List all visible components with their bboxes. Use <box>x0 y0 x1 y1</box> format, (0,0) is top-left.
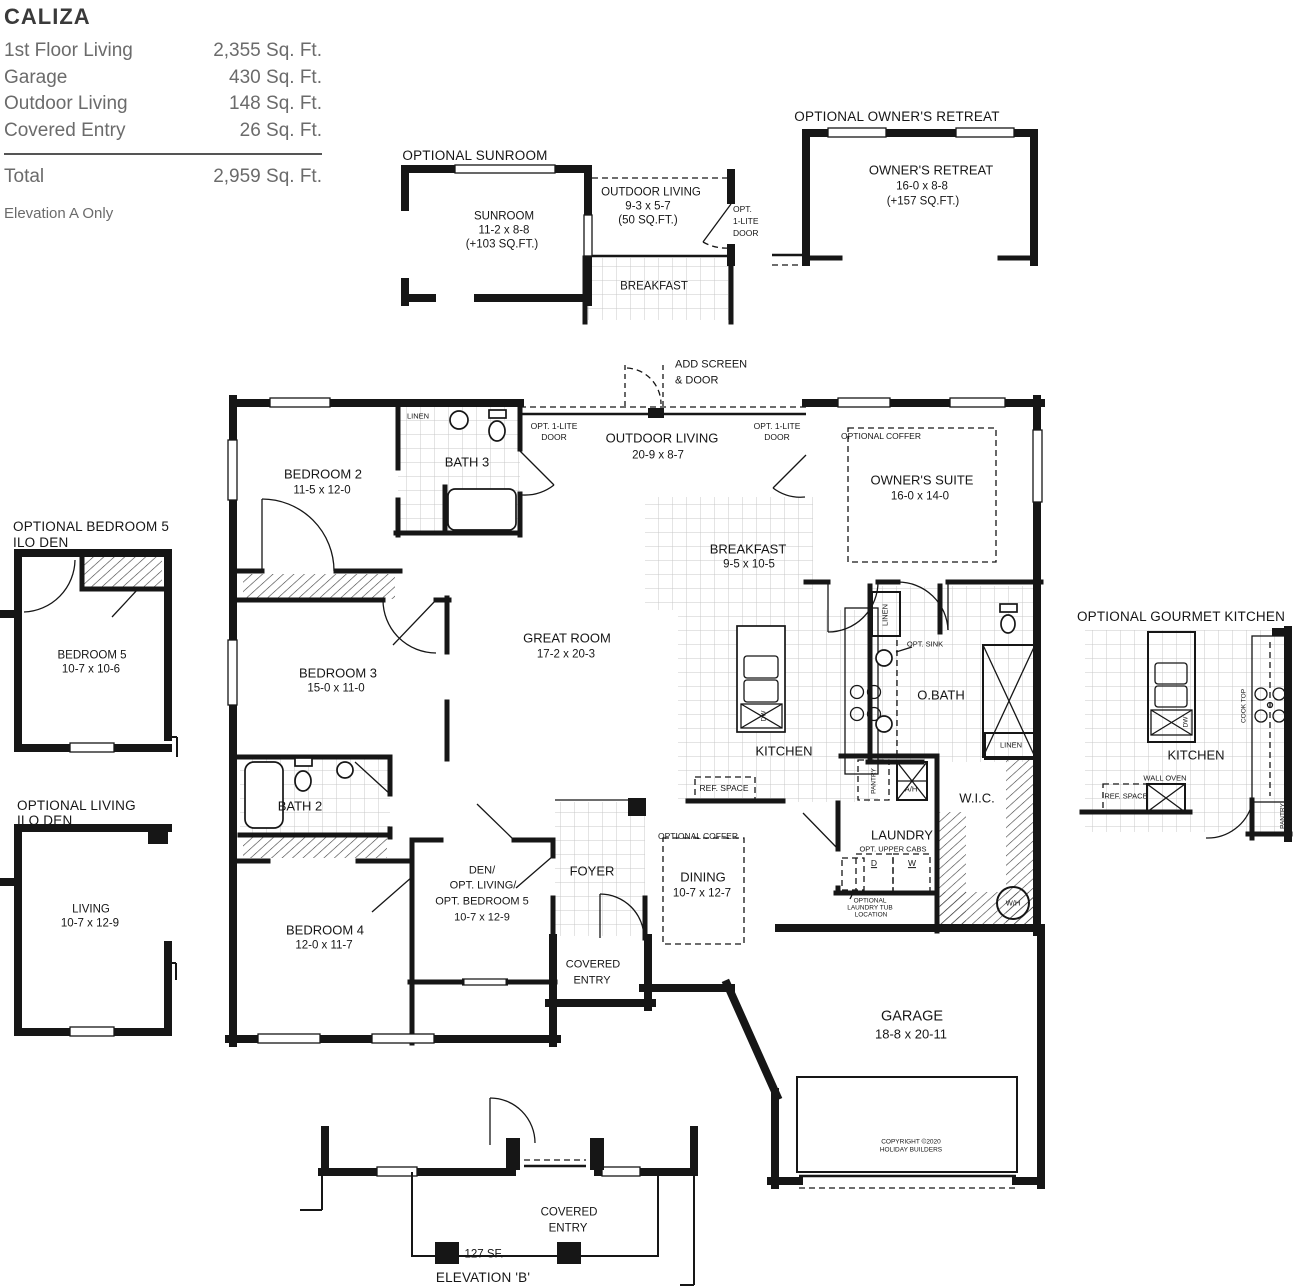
opt-sink-label: OPT. SINK <box>907 641 943 650</box>
covered-entry-label: COVERED <box>566 959 620 972</box>
spec-row: Garage 430 Sq. Ft. <box>4 65 322 92</box>
bath2-sink-icon <box>337 762 353 778</box>
bath2-toilet-icon <box>295 758 312 766</box>
owners-suite-label: OWNER'S SUITE <box>871 474 974 489</box>
kitchen-label: KITCHEN <box>755 745 812 760</box>
sunroom-label: SUNROOM <box>474 210 534 223</box>
spec-table: CALIZA 1st Floor Living 2,355 Sq. Ft. Ga… <box>4 2 322 222</box>
obath-toilet-icon <box>1000 604 1017 612</box>
pantry-label: PANTRY <box>870 768 877 794</box>
opt-door-label: DOOR <box>733 229 759 239</box>
upper-cabs-label: OPT. UPPER CABS <box>859 846 926 855</box>
bath3-sink-icon <box>450 411 468 429</box>
spec-value: 26 Sq. Ft. <box>240 118 322 145</box>
copyright-label: HOLIDAY BUILDERS <box>880 1146 942 1153</box>
floor-plan-sheet: CALIZA 1st Floor Living 2,355 Sq. Ft. Ga… <box>0 0 1298 1287</box>
elevation-b-title: ELEVATION 'B' <box>436 1270 530 1286</box>
laundry-label: LAUNDRY <box>871 829 933 844</box>
spec-total-label: Total <box>4 164 44 191</box>
dishwasher-label: DW <box>1182 717 1189 728</box>
bath2-label: BATH 2 <box>278 800 323 815</box>
covered-entry-label: ENTRY <box>573 975 610 988</box>
outdoor-living-label: OUTDOOR LIVING <box>606 432 719 447</box>
linen-label: LINEN <box>1000 742 1022 751</box>
elevb-covered-entry-label: ENTRY <box>549 1222 588 1235</box>
bath3-toilet-icon <box>489 410 506 418</box>
ref-space-label: REF. SPACE <box>1104 793 1147 802</box>
spec-row: Outdoor Living 148 Sq. Ft. <box>4 91 322 118</box>
opt-door-label: OPT. <box>733 205 752 215</box>
breakfast-dims: 9-5 x 10-5 <box>723 558 775 571</box>
bedroom4-dims: 12-0 x 11-7 <box>295 939 352 952</box>
den-dims: 10-7 x 12-9 <box>454 912 510 925</box>
elevb-sf-label: 127 SF. <box>465 1248 504 1261</box>
ref-space-label: REF. SPACE <box>700 784 749 794</box>
great-room-label: GREAT ROOM <box>523 632 611 647</box>
bedroom5-inset-title: OPTIONAL BEDROOM 5 <box>13 519 169 535</box>
dining-label: DINING <box>680 871 726 886</box>
bedroom5-dims: 10-7 x 10-6 <box>62 663 120 676</box>
elevb-covered-entry-label: COVERED <box>541 1206 598 1219</box>
gourmet-inset-title: OPTIONAL GOURMET KITCHEN <box>1077 609 1285 625</box>
retreat-dims: 16-0 x 8-8 <box>896 180 948 193</box>
great-room-dims: 17-2 x 20-3 <box>537 648 595 661</box>
living-inset-title: OPTIONAL LIVING <box>17 798 136 814</box>
living-inset-title: ILO DEN <box>17 813 72 829</box>
dryer-label: D <box>871 859 877 869</box>
opt-door-left-label: DOOR <box>541 433 567 443</box>
spec-row: 1st Floor Living 2,355 Sq. Ft. <box>4 38 322 65</box>
sunroom-inset-title: OPTIONAL SUNROOM <box>402 148 547 164</box>
pantry-label: PANTRY <box>1279 803 1286 829</box>
spec-value: 430 Sq. Ft. <box>229 65 322 92</box>
dishwasher-label: DW <box>760 711 767 722</box>
den-label: DEN/ <box>469 865 495 878</box>
opt-door-left-label: OPT. 1-LITE <box>531 422 578 432</box>
outdoor-living-dims: 20-9 x 8-7 <box>632 449 684 462</box>
dining-dims: 10-7 x 12-7 <box>673 887 731 900</box>
gourmet-kitchen-label: KITCHEN <box>1167 749 1224 764</box>
sunroom-ol-dims: 9-3 x 5-7 <box>625 200 670 213</box>
opt-door-right-label: OPT. 1-LITE <box>754 422 801 432</box>
cook-top-label: COOK TOP <box>1240 689 1247 723</box>
retreat-area: (+157 SQ.FT.) <box>887 195 960 208</box>
elevation-note: Elevation A Only <box>4 205 322 222</box>
bedroom2-dims: 11-5 x 12-0 <box>293 484 350 497</box>
garage-dims: 18-8 x 20-11 <box>875 1028 947 1043</box>
bedroom3-label: BEDROOM 3 <box>299 667 377 682</box>
bath3-tub-icon <box>448 489 516 530</box>
living-label: LIVING <box>72 903 110 916</box>
wic-label: W.I.C. <box>959 792 994 807</box>
bath2-tub-icon <box>245 762 283 828</box>
spec-label: Covered Entry <box>4 118 125 145</box>
sunroom-dims: 11-2 x 8-8 <box>479 224 530 237</box>
sunroom-ol-area: (50 SQ.FT.) <box>618 214 677 227</box>
tile-floors <box>240 258 1290 936</box>
owners-bath-label: O.BATH <box>917 689 964 704</box>
linen-label: LINEN <box>882 604 891 626</box>
air-handler-label: A/H <box>905 786 918 795</box>
add-screen-label: & DOOR <box>675 375 718 388</box>
obath-sink-icon <box>876 650 892 666</box>
spec-total-row: Total 2,959 Sq. Ft. <box>4 153 322 191</box>
opt-door-right-label: DOOR <box>764 433 790 443</box>
den-label: OPT. BEDROOM 5 <box>435 896 529 909</box>
coffer-label: OPTIONAL COFFER <box>658 832 738 842</box>
spec-total-value: 2,959 Sq. Ft. <box>213 164 322 191</box>
owners-suite-dims: 16-0 x 14-0 <box>891 490 949 503</box>
bedroom2-label: BEDROOM 2 <box>284 468 362 483</box>
coffer-label: OPTIONAL COFFER <box>841 432 921 442</box>
bedroom4-label: BEDROOM 4 <box>286 924 364 939</box>
bedroom5-inset-title: ILO DEN <box>13 535 68 551</box>
sunroom-ol-label: OUTDOOR LIVING <box>601 186 701 199</box>
spec-value: 2,355 Sq. Ft. <box>213 38 322 65</box>
spec-label: 1st Floor Living <box>4 38 133 65</box>
washer-label: W <box>908 859 916 869</box>
plan-title: CALIZA <box>4 4 322 30</box>
add-screen-label: ADD SCREEN <box>675 359 747 372</box>
wall-oven-label: WALL OVEN <box>1143 775 1186 784</box>
opt-door-label: 1-LITE <box>733 217 759 227</box>
retreat-inset-title: OPTIONAL OWNER'S RETREAT <box>794 109 999 125</box>
bath3-label: BATH 3 <box>445 456 490 471</box>
retreat-label: OWNER'S RETREAT <box>869 164 993 179</box>
bedroom5-label: BEDROOM 5 <box>57 649 126 662</box>
sunroom-area: (+103 SQ.FT.) <box>466 238 539 251</box>
laundry-tub-box <box>842 858 864 890</box>
copyright-label: COPYRIGHT ©2020 <box>881 1138 941 1145</box>
bedroom3-dims: 15-0 x 11-0 <box>307 682 364 695</box>
spec-value: 148 Sq. Ft. <box>229 91 322 118</box>
foyer-label: FOYER <box>570 865 615 880</box>
den-label: OPT. LIVING/ <box>450 880 517 893</box>
water-heater-label: W/H <box>1006 900 1021 909</box>
spec-row: Covered Entry 26 Sq. Ft. <box>4 118 322 145</box>
living-dims: 10-7 x 12-9 <box>61 917 119 930</box>
living-inset-walls <box>0 826 176 1036</box>
spec-label: Garage <box>4 65 67 92</box>
spec-label: Outdoor Living <box>4 91 128 118</box>
breakfast-label: BREAKFAST <box>710 543 787 558</box>
garage-label: GARAGE <box>881 1009 943 1026</box>
breakfast-inset-label: BREAKFAST <box>620 280 688 293</box>
linen-label: LINEN <box>407 413 429 422</box>
laundry-tub-label: LOCATION <box>855 911 888 918</box>
